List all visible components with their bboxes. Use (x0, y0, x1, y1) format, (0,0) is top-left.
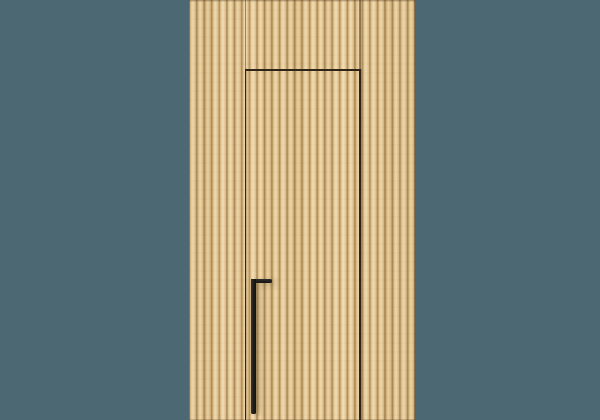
door-gap-top (245, 69, 361, 71)
door-gap-right (359, 69, 361, 420)
panel-seam-above-door-right (359, 0, 360, 70)
hidden-door (245, 69, 361, 420)
panel-seam-above-door-left (245, 0, 246, 70)
handle-vertical-bar (251, 279, 257, 415)
door-gap-left (245, 69, 247, 420)
product-image (0, 0, 600, 420)
wood-slat-panel (189, 0, 415, 420)
